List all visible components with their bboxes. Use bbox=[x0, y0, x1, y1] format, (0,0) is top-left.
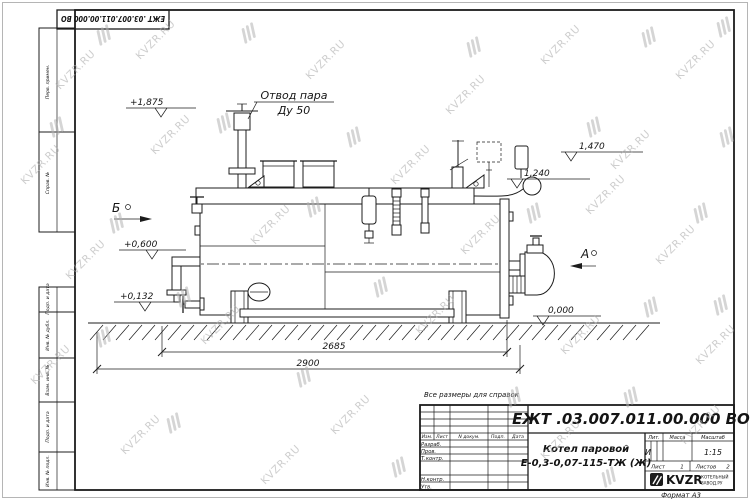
stamp-doc-number: ЕЖТ .03.007.011.00.000 ВО bbox=[61, 14, 165, 23]
top-hatch-1 bbox=[260, 161, 297, 187]
sheet-value: 1 bbox=[680, 465, 684, 471]
boiler-drawing-canvas: Перв. примен. Справ. № Подп. и дата Инв.… bbox=[0, 0, 750, 500]
watermark-logo-icon bbox=[713, 16, 734, 37]
sheets-value: 2 bbox=[726, 465, 730, 471]
watermark-text: KVZR.RU bbox=[654, 223, 698, 267]
svg-text:+1,875: +1,875 bbox=[130, 98, 164, 108]
top-hatch-2 bbox=[300, 161, 337, 187]
sheets-label: Листов bbox=[695, 465, 717, 471]
margin-label-inv-podl: Инв. № подл. bbox=[45, 455, 51, 487]
scale-value: 1:15 bbox=[704, 448, 722, 457]
top-designation-stamp: ЕЖТ .03.007.011.00.000 ВО bbox=[57, 10, 169, 29]
watermark-logo-icon bbox=[93, 24, 114, 45]
row-nkontr: Н.контр. bbox=[421, 477, 444, 483]
watermark-logo-icon bbox=[690, 202, 711, 223]
lifting-lug-right bbox=[466, 175, 484, 188]
safety-valve bbox=[450, 140, 468, 188]
lit-value: И bbox=[645, 448, 651, 457]
svg-text:+0,600: +0,600 bbox=[124, 240, 158, 250]
watermark-text: KVZR.RU bbox=[64, 238, 108, 282]
elevation-mark-water: +0,600 bbox=[119, 240, 186, 259]
margin-label-perv-primen: Перв. примен. bbox=[45, 65, 51, 100]
watermark-text: KVZR.RU bbox=[389, 143, 433, 187]
watermark-text: KVZR.RU bbox=[609, 128, 653, 172]
lit-label: Лит. bbox=[647, 435, 660, 441]
col-list: Лист bbox=[435, 434, 448, 440]
col-izm: Изм. bbox=[422, 434, 433, 440]
watermark-logo-icon bbox=[388, 456, 409, 477]
bottom-blowdown-pipe bbox=[240, 309, 454, 317]
ground-hatch bbox=[90, 325, 649, 340]
watermark-logo-icon bbox=[710, 294, 731, 315]
svg-text:1,240: 1,240 bbox=[524, 169, 550, 179]
view-arrow-a: А bbox=[570, 247, 597, 269]
watermark-text: KVZR.RU bbox=[584, 173, 628, 217]
watermark-logo-icon bbox=[213, 112, 234, 133]
margin-label-inv-dubl: Инв. № дубл. bbox=[45, 319, 51, 350]
reference-note: Все размеры для справок bbox=[424, 391, 520, 399]
watermark-text: KVZR.RU bbox=[444, 73, 488, 117]
watermark-text: KVZR.RU bbox=[694, 323, 738, 367]
watermark-text: KVZR.RU bbox=[559, 313, 603, 357]
watermark-logo-icon bbox=[106, 212, 127, 233]
level-gauge-2 bbox=[392, 189, 401, 235]
annotation-otvod-para: Отвод пара bbox=[260, 89, 327, 102]
row-razrab: Разраб. bbox=[421, 442, 441, 448]
watermark-text: KVZR.RU bbox=[149, 113, 193, 157]
watermark-text: KVZR.RU bbox=[19, 143, 63, 187]
watermark-logo-icon bbox=[640, 296, 661, 317]
dim-outer-value: 2900 bbox=[297, 359, 320, 369]
col-data: Дата bbox=[511, 434, 524, 440]
watermark-text: KVZR.RU bbox=[329, 393, 373, 437]
rear-end-plate bbox=[500, 199, 513, 318]
watermark-logo-icon bbox=[523, 202, 544, 223]
margin-label-podp-data-1: Подп. и дата bbox=[45, 283, 51, 314]
watermark-text: KVZR.RU bbox=[134, 18, 178, 62]
dim-inner-value: 2685 bbox=[323, 342, 346, 352]
watermark-logo-icon bbox=[598, 466, 619, 487]
front-drain-valve bbox=[183, 296, 204, 313]
watermark-logo-icon bbox=[463, 36, 484, 57]
margin-label-podp-data-2: Подп. и дата bbox=[45, 411, 51, 442]
watermark-logo-icon bbox=[163, 412, 184, 433]
watermark-logo-icon bbox=[638, 26, 659, 47]
col-podp: Подп. bbox=[491, 434, 505, 440]
row-utv: Утв. bbox=[421, 484, 432, 490]
manhole-oval bbox=[248, 283, 270, 301]
row-prov: Пров. bbox=[421, 449, 436, 455]
watermark-logo-icon bbox=[293, 366, 314, 387]
watermark-logo-icon bbox=[93, 326, 114, 347]
logo-subtext-2: ЗАВОД.РУ bbox=[701, 481, 723, 486]
col-doc: N докум. bbox=[458, 434, 479, 440]
title-block: Все размеры для справок Изм. Лист N д bbox=[420, 391, 750, 490]
logo-subtext-1: КОТЕЛЬНЫЙ bbox=[701, 475, 728, 480]
steam-outlet-valve bbox=[226, 104, 258, 188]
logo-text: KVZR bbox=[666, 473, 703, 487]
svg-text:0,000: 0,000 bbox=[548, 306, 574, 316]
scale-label: Масштаб bbox=[701, 435, 725, 441]
watermark-text: KVZR.RU bbox=[674, 38, 718, 82]
steam-outlet-annotation: Отвод пара Ду 50 bbox=[248, 89, 334, 119]
kvzr-logo: KVZR КОТЕЛЬНЫЙ ЗАВОД.РУ bbox=[650, 473, 728, 487]
svg-text:+0,132: +0,132 bbox=[120, 292, 154, 302]
view-arrow-b: Б bbox=[112, 201, 152, 222]
level-gauge-3 bbox=[421, 189, 429, 233]
sheet-label: Лист bbox=[650, 465, 666, 471]
watermark-text: KVZR.RU bbox=[539, 23, 583, 67]
svg-text:1,470: 1,470 bbox=[579, 142, 605, 152]
drawing-sheet: Перв. примен. Справ. № Подп. и дата Инв.… bbox=[0, 0, 750, 500]
dimension-2900: 2900 bbox=[93, 332, 524, 374]
watermark-logo-icon bbox=[583, 116, 604, 137]
lifting-lug-left bbox=[249, 176, 264, 187]
row-tkontr: Т.контр. bbox=[421, 456, 443, 462]
watermark-logo-icon bbox=[343, 126, 364, 147]
watermark-text: KVZR.RU bbox=[119, 413, 163, 457]
elevation-mark-right-mid: 1,240 bbox=[507, 169, 590, 188]
watermark-text: KVZR.RU bbox=[304, 38, 348, 82]
watermark-logo-icon bbox=[238, 22, 259, 43]
watermark-text: KVZR.RU bbox=[259, 443, 303, 487]
annotation-du50: Ду 50 bbox=[277, 104, 311, 117]
left-margin-columns: Перв. примен. Справ. № Подп. и дата Инв.… bbox=[39, 28, 75, 490]
view-label-a: А bbox=[580, 247, 589, 261]
product-model: Е-0,3-0,07-115-ТЖ (Ж) bbox=[521, 458, 652, 469]
margin-label-sprav: Справ. № bbox=[45, 172, 51, 195]
format-note: Формат А3 bbox=[661, 492, 701, 500]
burner-assembly bbox=[509, 236, 554, 295]
